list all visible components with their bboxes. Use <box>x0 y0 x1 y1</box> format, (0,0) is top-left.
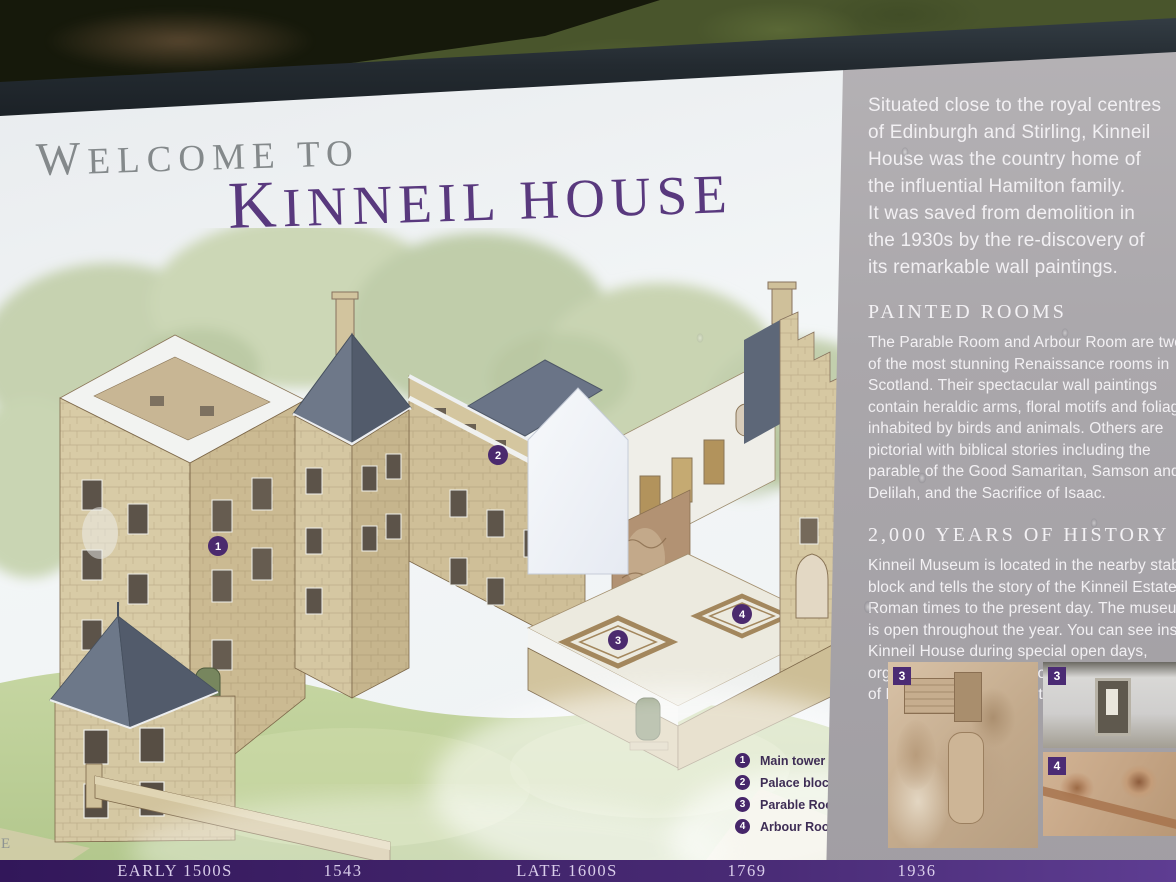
timeline-1769: 1769 <box>728 861 767 881</box>
legend-label-main-tower: Main tower <box>760 754 825 768</box>
timeline-1543: 1543 <box>324 861 363 881</box>
timeline-early-1500s: EARLY 1500S <box>117 861 233 881</box>
photo-parable-room-interior: 3 <box>1043 662 1176 748</box>
timeline-bar: EARLY 1500S 1543 LATE 1600S 1769 1936 <box>0 860 1176 882</box>
legend-number-2: 2 <box>735 775 750 790</box>
intro-paragraph: Situated close to the royal centres of E… <box>868 92 1176 281</box>
painted-figure <box>948 732 984 824</box>
legend-item-palace-block: 2 Palace block <box>735 775 844 790</box>
photo-badge-4: 4 <box>1048 757 1066 775</box>
photo-parable-room-wall-painting: 3 <box>888 662 1038 848</box>
marker-palace-block: 2 <box>495 450 501 462</box>
legend-number-4: 4 <box>735 819 750 834</box>
painted-plaque <box>904 678 958 714</box>
legend-label-palace-block: Palace block <box>760 776 836 790</box>
info-sidebar: Situated close to the royal centres of E… <box>826 0 1176 882</box>
painted-rooms-paragraph: The Parable Room and Arbour Room are two… <box>868 332 1176 504</box>
marker-parable-room: 3 <box>615 635 621 647</box>
marker-arbour-room: 4 <box>739 609 746 621</box>
photo-of-interpretive-sign: WELCOME TO KINNEIL HOUSE E <box>0 0 1176 882</box>
timeline-late-1600s: LATE 1600S <box>516 861 618 881</box>
photo-badge-3: 3 <box>893 667 911 685</box>
section-heading-painted-rooms: PAINTED ROOMS <box>868 301 1176 324</box>
sidebar-content: Situated close to the royal centres of E… <box>826 0 1176 706</box>
legend-item-main-tower: 1 Main tower <box>735 753 844 768</box>
window-pane <box>1106 689 1118 715</box>
room-window <box>1095 678 1131 736</box>
ceiling-painted-band <box>1043 785 1176 832</box>
timeline-1936: 1936 <box>898 861 937 881</box>
painted-church <box>954 672 982 722</box>
kinneil-house-cutaway-illustration: 1 2 3 4 <box>0 228 845 868</box>
cut-off-letter: E <box>1 836 10 853</box>
marker-main-tower: 1 <box>215 541 221 553</box>
legend-number-1: 1 <box>735 753 750 768</box>
page-title: KINNEIL HOUSE <box>227 152 734 245</box>
photo-badge-3b: 3 <box>1048 667 1066 685</box>
legend-number-3: 3 <box>735 797 750 812</box>
photo-arbour-room-ceiling: 4 <box>1043 752 1176 836</box>
painted-tree <box>896 720 936 790</box>
mud-patch <box>30 6 330 76</box>
section-heading-history: 2,000 YEARS OF HISTORY <box>868 524 1176 547</box>
